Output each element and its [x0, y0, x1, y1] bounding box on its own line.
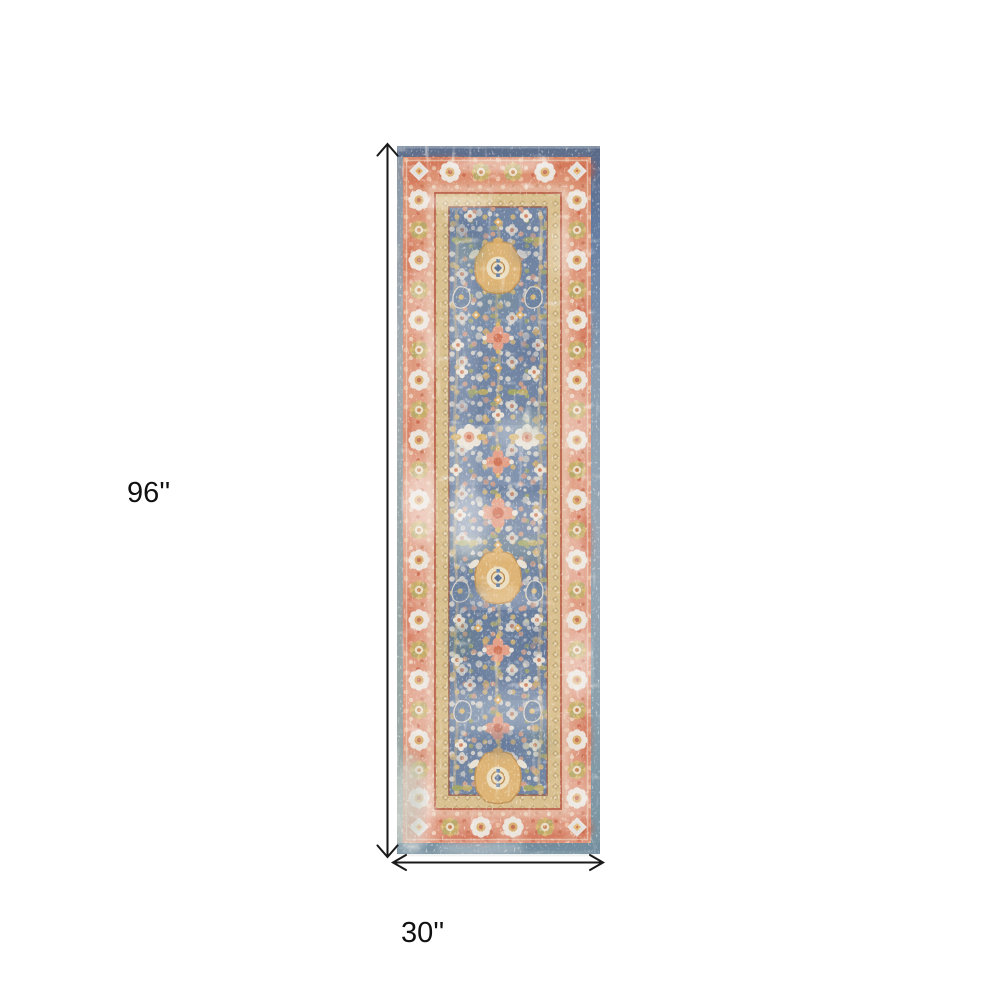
- svg-text:96'': 96'': [127, 477, 170, 509]
- svg-text:30'': 30'': [401, 917, 444, 949]
